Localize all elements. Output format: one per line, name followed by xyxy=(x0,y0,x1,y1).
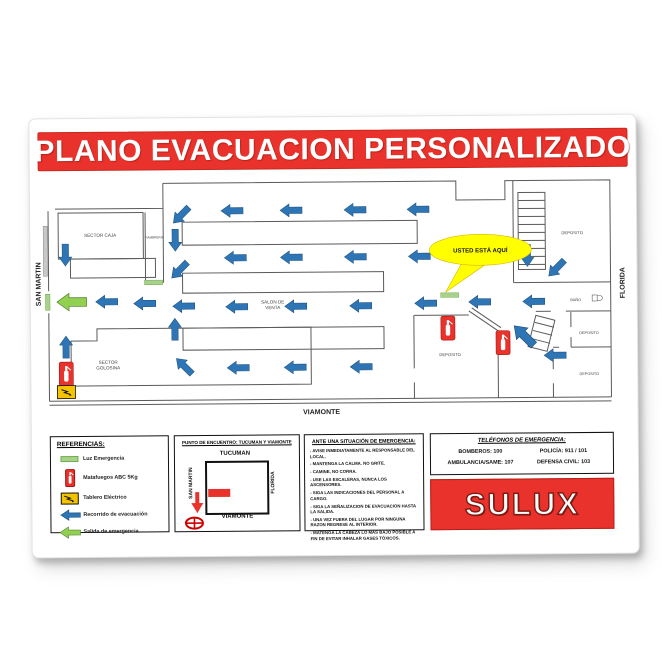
evac-arrow-icon xyxy=(224,251,246,264)
evac-arrow-icon xyxy=(344,250,366,263)
evac-arrow-icon xyxy=(226,300,248,313)
evac-arrow-icon xyxy=(408,250,430,263)
evac-arrow-icon xyxy=(227,361,249,374)
instructions-title: ANTE UNA SITUACIÓN DE EMERGENCIA: xyxy=(307,438,421,445)
meeting-point-box: PUNTO DE ENCUENTRO: TUCUMAN Y VIAMONTE T… xyxy=(174,434,301,532)
meeting-point-icon xyxy=(183,516,205,530)
legend-box: REFERENCIAS: Luz EmergenciaMatafuegos AB… xyxy=(50,435,170,533)
toilet-icon xyxy=(592,295,602,301)
extinguisher-icon xyxy=(441,316,455,340)
evac-arrow-icon xyxy=(173,300,195,313)
exit-arrow-icon xyxy=(57,293,87,311)
evac-arrow-icon xyxy=(469,295,491,308)
evac-arrow-icon xyxy=(169,203,194,228)
evac-arrow-icon xyxy=(407,203,429,216)
evac-arrow-icon xyxy=(350,360,372,373)
instruction-item: - UNA VEZ FUERA DEL LUGAR POR NINGUNA RA… xyxy=(310,516,418,528)
electric-panel-icon xyxy=(57,386,75,399)
emergency-light-icon xyxy=(441,293,459,298)
evac-arrow-icon xyxy=(96,295,118,308)
street-label-san-martin: SAN MARTIN xyxy=(35,262,42,306)
brand-logo-text: SULUX xyxy=(465,486,580,523)
wall xyxy=(183,327,384,351)
wall xyxy=(183,272,384,294)
evac-arrow-icon xyxy=(57,509,83,521)
evac-arrow-icon xyxy=(134,297,156,310)
room-label: DEPOSITO xyxy=(561,230,583,235)
phone-entry: BOMBEROS: 100 xyxy=(439,449,522,456)
meeting-point-title: PUNTO DE ENCUENTRO: TUCUMAN Y VIAMONTE xyxy=(175,439,299,445)
evac-arrow-icon xyxy=(285,300,307,313)
room-label: FIAMBRERIA xyxy=(145,235,165,239)
room-label: DEPOSITO xyxy=(439,352,461,357)
wall xyxy=(49,313,50,401)
wall xyxy=(70,258,155,278)
instructions-box: ANTE UNA SITUACIÓN DE EMERGENCIA: - AVIS… xyxy=(304,433,425,531)
instruction-item: - AVISE INMEDIATAMENTE AL RESPONSABLE DE… xyxy=(310,447,418,459)
evac-arrow-icon xyxy=(221,204,243,217)
wall xyxy=(514,282,611,283)
evac-arrow-icon xyxy=(523,295,545,308)
legend-item-label: Recorrido de evacuación xyxy=(83,511,147,518)
wall xyxy=(533,330,552,335)
legend-item: Luz Emergencia xyxy=(57,452,168,465)
wall xyxy=(182,220,417,245)
legend-items: Luz EmergenciaMatafuegos ABC 5KgTablero … xyxy=(51,452,169,539)
instruction-item: - CAMINE, NO CORRA. xyxy=(310,468,418,474)
emergency-light-icon xyxy=(45,294,50,310)
instruction-item: - SIGA LA SEÑALIZACION DE EVACUACION HAS… xyxy=(310,503,418,515)
legend-item: Matafuegos ABC 5Kg xyxy=(57,468,168,487)
room-label: DEPOSITO xyxy=(579,331,599,335)
evac-arrow-icon xyxy=(415,297,437,310)
wall xyxy=(55,183,163,209)
evac-arrow-icon xyxy=(167,258,192,283)
phone-entry: DEFENSA CIVIL: 103 xyxy=(522,459,605,466)
phones-box: TELÉFONOS DE EMERGENCIA: BOMBEROS: 100PO… xyxy=(430,432,614,475)
street-label-florida: FLORIDA xyxy=(619,267,626,298)
title-banner: PLANO EVACUACION PERSONALIZADO xyxy=(37,128,627,172)
electric-panel-icon xyxy=(57,491,83,504)
emergency-light-icon xyxy=(145,280,163,285)
evac-arrow-icon xyxy=(169,229,182,251)
extinguisher-icon xyxy=(496,331,510,355)
street-label-viamonte: VIAMONTE xyxy=(207,514,267,520)
wall xyxy=(469,311,498,331)
emergency-light-icon xyxy=(57,452,83,464)
wall xyxy=(71,327,311,386)
extinguisher-icon xyxy=(57,469,83,487)
evac-arrow-icon xyxy=(344,203,366,216)
room-label: SECTORGOLOSINA xyxy=(96,360,121,371)
evacuation-plan-poster: USTED ESTÁ AQUÍSECTOR CAJAFIAMBRERIASALO… xyxy=(28,114,639,559)
room-label: BAÑO xyxy=(570,297,581,302)
evac-arrow-icon xyxy=(284,361,306,374)
you-are-here-callout: USTED ESTÁ AQUÍ xyxy=(429,234,531,292)
legend-item: Salida de emergencia xyxy=(57,525,168,539)
evac-arrow-icon xyxy=(350,299,372,312)
brand-logo: SULUX xyxy=(430,478,614,530)
evac-arrow-icon xyxy=(544,256,569,281)
evac-arrow-icon xyxy=(172,354,197,379)
instruction-item: - MANTENGA LA CALMA. NO GRITE. xyxy=(310,461,418,467)
legend-item: Tablero Eléctrico xyxy=(57,491,168,505)
instructions-list: - AVISE INMEDIATAMENTE AL RESPONSABLE DE… xyxy=(305,447,424,541)
wall xyxy=(50,397,612,401)
evac-arrow-icon xyxy=(509,320,540,351)
legend-item-label: Tablero Eléctrico xyxy=(83,495,126,501)
page-background: USTED ESTÁ AQUÍSECTOR CAJAFIAMBRERIASALO… xyxy=(0,0,662,662)
city-block xyxy=(205,461,269,516)
evac-arrow-icon xyxy=(280,204,302,217)
instruction-item: - MATENGA LA CABEZA LO MÁS BAJO POSIBLE … xyxy=(311,530,419,542)
extinguisher-icon xyxy=(59,362,73,386)
room-label: DEPOSITO xyxy=(580,372,600,376)
legend-item: Recorrido de evacuación xyxy=(57,508,168,521)
street-label-tucuman: TUCUMAN xyxy=(205,451,265,457)
phone-entry: POLICÍA: 911 / 101 xyxy=(522,448,605,455)
legend-item-label: Matafuegos ABC 5Kg xyxy=(83,475,138,481)
exit-arrow-icon xyxy=(57,525,83,538)
wall xyxy=(48,211,49,291)
meeting-route-arrow-icon xyxy=(190,490,204,514)
phone-entry: AMBULANCIA/SAME: 107 xyxy=(439,460,522,467)
wall xyxy=(163,208,164,282)
evac-arrow-icon xyxy=(168,318,181,340)
door xyxy=(43,226,47,276)
street-label-florida: FLORIDA xyxy=(270,452,276,512)
room-label: SECTOR CAJA xyxy=(84,233,117,238)
wall xyxy=(535,322,554,327)
street-label-viamonte: VIAMONTE xyxy=(303,409,340,416)
phones-title: TELÉFONOS DE EMERGENCIA: xyxy=(431,437,613,444)
wall xyxy=(145,212,164,282)
legend-item-label: Luz Emergencia xyxy=(83,455,124,461)
legend-item-label: Salida de emergencia xyxy=(84,529,139,535)
room-label: SALON DEVENTA xyxy=(261,299,284,310)
instruction-item: - USE LAS ESCALERAS, NUNCA LOS ASCENSORE… xyxy=(310,476,418,488)
evac-arrow-icon xyxy=(280,251,302,264)
wall xyxy=(513,181,514,283)
phones-list: BOMBEROS: 100POLICÍA: 911 / 101AMBULANCI… xyxy=(431,448,613,466)
wall xyxy=(472,308,501,328)
legend-title: REFERENCIAS: xyxy=(57,440,168,448)
poster-title: PLANO EVACUACION PERSONALIZADO xyxy=(34,130,630,169)
building-marker xyxy=(208,489,230,497)
wall xyxy=(50,401,612,405)
instruction-item: - SIGA LAS INDICACIONES DEL PERSONAL A C… xyxy=(310,490,418,502)
